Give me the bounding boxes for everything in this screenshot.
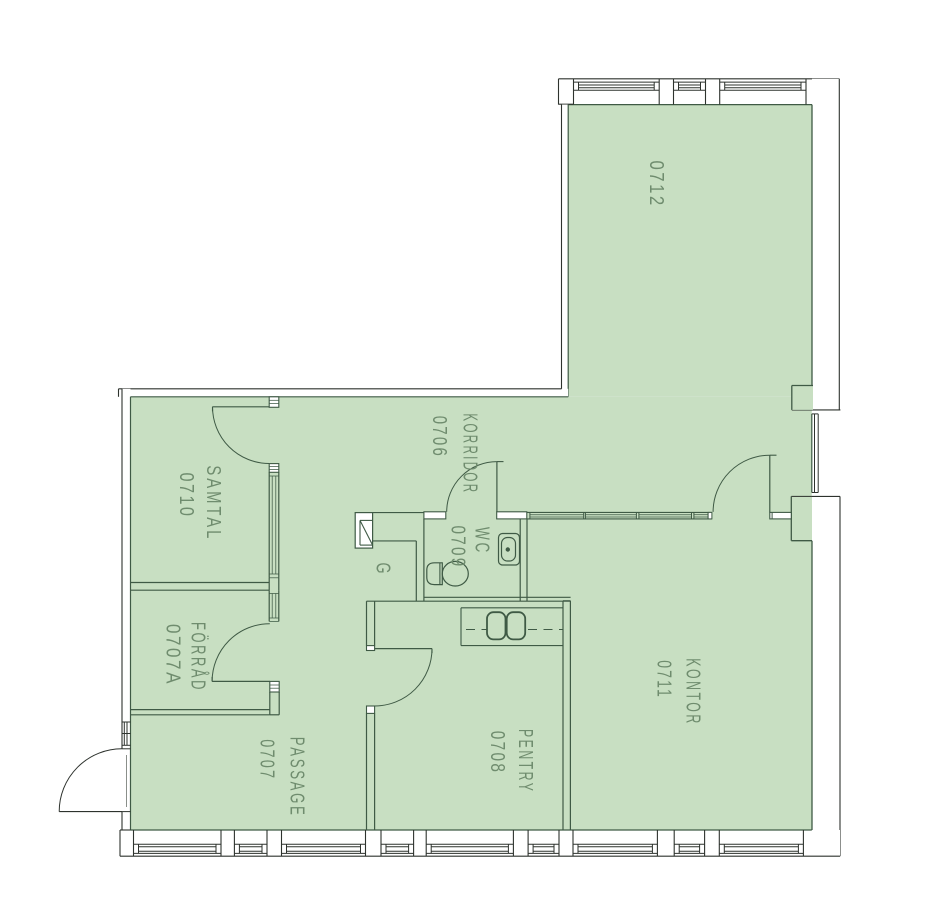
svg-text:KONTOR: KONTOR xyxy=(682,658,704,726)
svg-text:PASSAGE: PASSAGE xyxy=(286,737,308,818)
svg-text:PENTRY: PENTRY xyxy=(514,729,536,793)
svg-text:0707A: 0707A xyxy=(161,624,183,686)
svg-text:0711: 0711 xyxy=(653,660,675,699)
svg-text:SAMTAL: SAMTAL xyxy=(202,465,224,541)
svg-text:0709: 0709 xyxy=(447,526,469,569)
svg-text:KORRIDOR: KORRIDOR xyxy=(459,413,481,494)
svg-text:0708: 0708 xyxy=(486,731,508,774)
svg-text:0707: 0707 xyxy=(255,739,277,780)
svg-text:WC: WC xyxy=(471,527,493,555)
svg-text:0712: 0712 xyxy=(645,161,667,208)
svg-text:0706: 0706 xyxy=(428,416,450,458)
svg-text:FÖRRÅD: FÖRRÅD xyxy=(187,622,210,692)
svg-text:0710: 0710 xyxy=(175,473,197,519)
svg-text:G: G xyxy=(372,563,394,574)
